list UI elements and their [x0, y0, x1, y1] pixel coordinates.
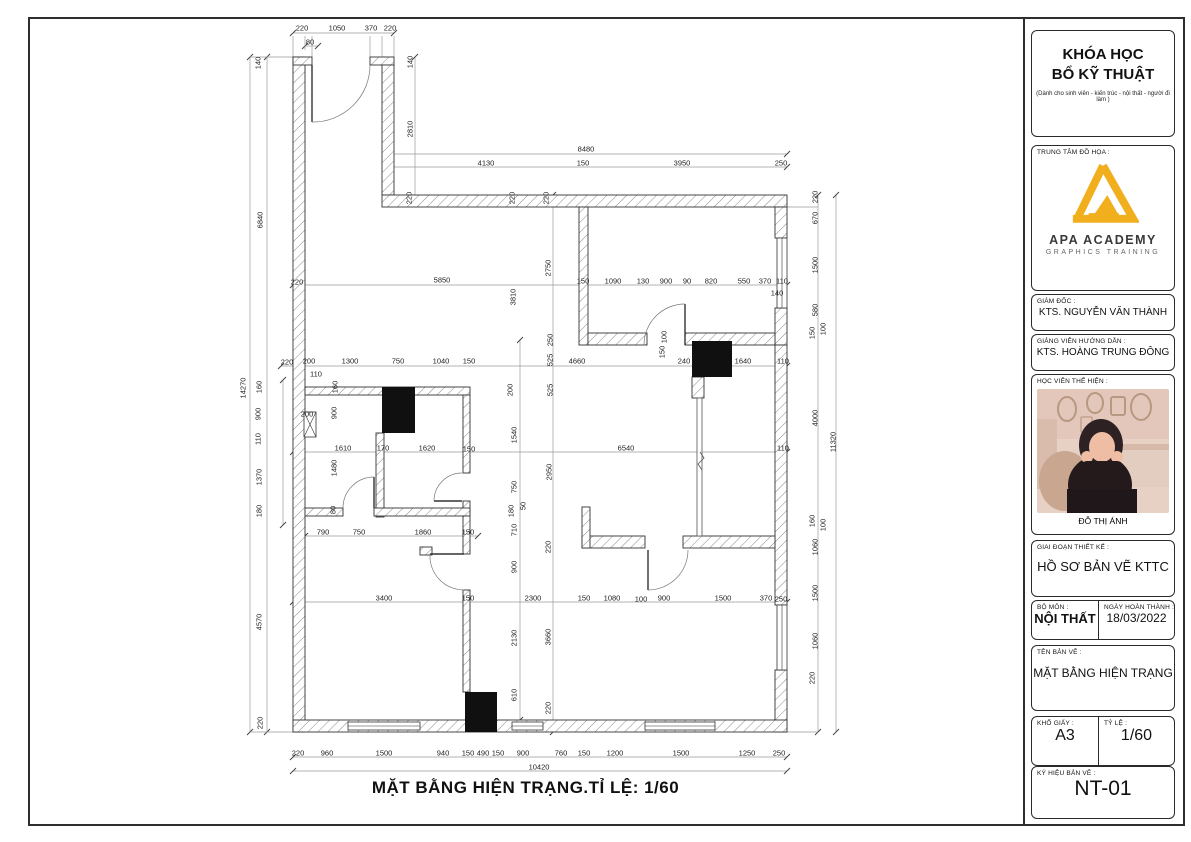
- paper-scale-box: KHỔ GIẤY : A3 TỶ LỆ : 1/60: [1031, 716, 1175, 766]
- door-swing-arc: [648, 550, 688, 590]
- drawing-name-label: TÊN BẢN VẼ :: [1032, 646, 1174, 656]
- dim-label: 110: [310, 370, 322, 379]
- dim-label: 3950: [674, 159, 691, 168]
- dim-label: 370: [759, 277, 772, 286]
- dim-label: 5850: [434, 276, 451, 285]
- dim-label: 80: [329, 506, 338, 514]
- dim-label: 1480: [330, 460, 339, 477]
- wall-segment: [382, 195, 787, 207]
- lecturer-name: KTS. HOÀNG TRUNG ĐÔNG: [1032, 347, 1174, 358]
- date-label: NGÀY HOÀN THÀNH :: [1099, 601, 1174, 611]
- wall-segment: [293, 57, 312, 65]
- lecturer-label: GIẢNG VIÊN HƯỚNG DẪN :: [1032, 335, 1174, 345]
- wall-segment: [382, 65, 394, 195]
- dim-label: 250: [775, 595, 788, 604]
- dim-label: 11320: [829, 432, 838, 452]
- subject-label: BỘ MÔN :: [1032, 601, 1098, 611]
- shaft: [382, 387, 415, 433]
- dim-label: 900: [510, 561, 519, 574]
- dim-label: 3400: [376, 594, 393, 603]
- dim-label: 1500: [811, 257, 820, 274]
- paper-cell: KHỔ GIẤY : A3: [1032, 717, 1098, 765]
- dim-label: 760: [555, 749, 568, 758]
- dim-label: 140: [406, 56, 415, 69]
- triangle-logo-icon: [1067, 160, 1139, 226]
- dim-label: 3660: [544, 629, 553, 646]
- dim-label: 100: [635, 595, 648, 604]
- dim-label: 100: [660, 331, 669, 344]
- date-value: 18/03/2022: [1099, 611, 1174, 625]
- dim-label: 220: [508, 192, 517, 205]
- dim-label: 220: [256, 717, 265, 730]
- dim-label: 900: [254, 408, 263, 421]
- dim-label: 525: [546, 354, 555, 367]
- dim-label: 150: [808, 327, 817, 340]
- dim-label: 150: [462, 528, 475, 537]
- drawing-caption: MẶT BẰNG HIỆN TRẠNG.TỈ LỆ: 1/60: [28, 778, 1023, 798]
- wall-segment: [582, 536, 645, 548]
- dim-label: 3810: [509, 289, 518, 306]
- subject-value: NỘI THẤT: [1032, 611, 1098, 626]
- dim-label: 250: [546, 334, 555, 347]
- dim-label: 6540: [618, 444, 635, 453]
- dim-label: 220: [405, 192, 414, 205]
- dim-label: 220: [544, 702, 553, 715]
- wall-segment: [374, 508, 470, 516]
- director-label: GIÁM ĐỐC :: [1032, 295, 1174, 305]
- dim-label: 1050: [329, 24, 346, 33]
- logo-name: APA ACADEMY: [1032, 233, 1174, 247]
- dim-label: 200: [301, 410, 314, 419]
- dim-label: 14270: [239, 378, 248, 399]
- dim-label: 140: [254, 57, 263, 70]
- dim-label: 1500: [811, 585, 820, 602]
- thin-partition: [697, 398, 702, 536]
- wall-segment: [463, 590, 470, 692]
- student-photo: [1037, 389, 1169, 513]
- student-box: HỌC VIÊN THỂ HIỆN :: [1031, 374, 1175, 535]
- door-swing-arc: [312, 65, 370, 122]
- dim-label: 2750: [544, 260, 553, 277]
- scale-label: TỶ LỆ :: [1099, 717, 1174, 727]
- dim-label: 1200: [607, 749, 624, 758]
- phase-label: GIAI ĐOẠN THIẾT KẾ :: [1032, 541, 1174, 551]
- phase-value: HỒ SƠ BẢN VẼ KTTC: [1032, 559, 1174, 574]
- dim-label: 610: [510, 689, 519, 702]
- dim-label: 110: [254, 433, 263, 445]
- dimension-text-layer: 2201050370220801401402810848041301503950…: [239, 24, 838, 772]
- dim-label: 1540: [510, 427, 519, 444]
- date-cell: NGÀY HOÀN THÀNH : 18/03/2022: [1098, 601, 1174, 639]
- dim-label: 1500: [715, 594, 732, 603]
- dim-label: 4000: [811, 410, 820, 427]
- lecturer-box: GIẢNG VIÊN HƯỚNG DẪN : KTS. HOÀNG TRUNG …: [1031, 334, 1175, 371]
- shaft: [465, 692, 497, 732]
- dim-label: 900: [330, 407, 339, 420]
- dim-label: 220: [384, 24, 397, 33]
- director-box: GIÁM ĐỐC : KTS. NGUYỄN VĂN THÀNH: [1031, 294, 1175, 331]
- dim-label: 150: [578, 749, 591, 758]
- dim-label: 370: [365, 24, 378, 33]
- dim-label: 110: [776, 277, 788, 286]
- dim-label: 220: [291, 278, 304, 287]
- dim-label: 1860: [415, 528, 432, 537]
- scale-value: 1/60: [1099, 727, 1174, 745]
- dim-label: 200: [303, 357, 316, 366]
- dim-label: 250: [773, 749, 786, 758]
- dim-label: 180: [255, 505, 264, 518]
- dim-label: 220: [544, 541, 553, 554]
- dim-label: 220: [542, 192, 551, 205]
- dim-label: 100: [819, 519, 828, 532]
- dim-label: 220: [296, 24, 309, 33]
- dim-label: 2300: [525, 594, 542, 603]
- dim-label: 960: [321, 749, 334, 758]
- dim-label: 130: [637, 277, 650, 286]
- dim-label: 80: [306, 38, 314, 47]
- dim-label: 250: [775, 159, 788, 168]
- dim-label: 200: [506, 384, 515, 397]
- wall-segment: [370, 57, 394, 65]
- wall-layer: [293, 57, 787, 732]
- wall-segment: [582, 507, 590, 548]
- subject-cell: BỘ MÔN : NỘI THẤT: [1032, 601, 1098, 639]
- dim-label: 150: [462, 749, 475, 758]
- dim-label: 150: [658, 346, 667, 359]
- subject-date-box: BỘ MÔN : NỘI THẤT NGÀY HOÀN THÀNH : 18/0…: [1031, 600, 1175, 640]
- code-label: KÝ HIỆU BẢN VẼ :: [1032, 767, 1174, 777]
- student-label: HỌC VIÊN THỂ HIỆN :: [1032, 375, 1174, 385]
- door-swing-arc: [430, 554, 464, 590]
- dim-label: 50: [519, 502, 528, 510]
- dim-label: 1370: [255, 469, 264, 486]
- wall-segment: [775, 308, 787, 345]
- apa-academy-logo: APA ACADEMY GRAPHICS TRAINING: [1032, 160, 1174, 256]
- dim-label: 110: [777, 444, 789, 453]
- dim-label: 1640: [735, 357, 752, 366]
- dim-label: 900: [517, 749, 530, 758]
- wall-segment: [463, 395, 470, 473]
- dim-label: 790: [317, 528, 330, 537]
- dim-label: 160: [808, 515, 817, 528]
- paper-label: KHỔ GIẤY :: [1032, 717, 1098, 727]
- director-name: KTS. NGUYỄN VĂN THÀNH: [1032, 307, 1174, 318]
- dim-label: 220: [808, 672, 817, 685]
- dim-label: 900: [660, 277, 673, 286]
- drawing-sheet: 2201050370220801401402810848041301503950…: [0, 0, 1191, 842]
- dim-label: 110: [777, 357, 789, 366]
- dim-label: 1300: [342, 357, 359, 366]
- dim-label: 1620: [419, 444, 436, 453]
- graphics-center-label: TRUNG TÂM ĐỒ HỌA :: [1032, 146, 1174, 156]
- drawing-name-box: TÊN BẢN VẼ : MẶT BẰNG HIỆN TRẠNG: [1031, 645, 1175, 711]
- floor-plan: 2201050370220801401402810848041301503950…: [28, 17, 1025, 824]
- dim-label: 670: [811, 212, 820, 225]
- dim-label: 1080: [604, 594, 621, 603]
- wall-segment: [683, 536, 775, 548]
- dim-label: 490: [477, 749, 490, 758]
- dim-label: 150: [577, 159, 590, 168]
- dim-label: 10420: [529, 763, 550, 772]
- dim-label: 4660: [569, 357, 586, 366]
- dim-label: 2810: [406, 121, 415, 138]
- design-phase-box: GIAI ĐOẠN THIẾT KẾ : HỒ SƠ BẢN VẼ KTTC: [1031, 540, 1175, 597]
- dim-label: 150: [463, 357, 476, 366]
- dim-label: 580: [811, 304, 820, 317]
- dim-label: 1500: [376, 749, 393, 758]
- dimension-layer: [247, 30, 839, 774]
- drawing-code-box: KÝ HIỆU BẢN VẼ : NT-01: [1031, 766, 1175, 819]
- dim-label: 220: [811, 191, 820, 204]
- dim-label: 2130: [510, 630, 519, 647]
- dim-label: 150: [492, 749, 505, 758]
- dim-label: 1060: [811, 539, 820, 556]
- dim-label: 240: [678, 357, 691, 366]
- dim-label: 8480: [578, 145, 595, 154]
- dim-label: 220: [292, 749, 305, 758]
- student-name: ĐỖ THỊ ÁNH: [1032, 516, 1174, 526]
- title-block: KHÓA HỌC BỔ KỸ THUẬT (Dành cho sinh viên…: [1031, 17, 1177, 824]
- dim-label: 6840: [256, 212, 265, 229]
- wall-segment: [588, 333, 647, 345]
- paper-value: A3: [1032, 727, 1098, 745]
- wall-segment: [293, 57, 305, 732]
- course-subtitle: (Dành cho sinh viên - kiến trúc - nội th…: [1032, 91, 1174, 103]
- dim-label: 100: [819, 323, 828, 336]
- dim-label: 1500: [673, 749, 690, 758]
- dim-label: 150: [577, 277, 590, 286]
- graphics-center-box: TRUNG TÂM ĐỒ HỌA : APA ACADEMY GRAPHICS …: [1031, 145, 1175, 291]
- dim-label: 940: [437, 749, 450, 758]
- wall-segment: [775, 345, 787, 605]
- dim-label: 2950: [545, 464, 554, 481]
- door-swing-arc: [343, 477, 374, 508]
- dim-label: 1250: [739, 749, 756, 758]
- dim-label: 370: [760, 594, 773, 603]
- dim-label: 750: [353, 528, 366, 537]
- logo-tagline: GRAPHICS TRAINING: [1032, 249, 1174, 256]
- dim-label: 550: [738, 277, 751, 286]
- dim-label: 1090: [605, 277, 622, 286]
- scale-cell: TỶ LỆ : 1/60: [1098, 717, 1174, 765]
- dim-label: 160: [331, 381, 340, 394]
- dim-label: 150: [463, 445, 476, 454]
- dim-label: 160: [255, 381, 264, 394]
- shaft: [692, 341, 732, 377]
- dim-label: 90: [683, 277, 691, 286]
- dim-label: 180: [507, 505, 516, 518]
- dim-label: 140: [771, 289, 784, 298]
- dim-label: 1610: [335, 444, 352, 453]
- dim-label: 4130: [478, 159, 495, 168]
- dim-label: 150: [578, 594, 591, 603]
- dim-label: 220: [281, 358, 294, 367]
- dim-label: 820: [705, 277, 718, 286]
- dim-label: 710: [510, 524, 519, 537]
- course-title: KHÓA HỌC BỔ KỸ THUẬT: [1032, 45, 1174, 84]
- door-swing-arc: [434, 473, 462, 501]
- dim-label: 750: [392, 357, 405, 366]
- dim-label: 900: [658, 594, 671, 603]
- dim-label: 750: [510, 481, 519, 494]
- dim-label: 150: [462, 594, 475, 603]
- drawing-name-value: MẶT BẰNG HIỆN TRẠNG: [1032, 666, 1174, 680]
- dim-label: 4570: [255, 614, 264, 631]
- dim-label: 525: [546, 384, 555, 397]
- code-value: NT-01: [1032, 777, 1174, 801]
- dim-label: 170: [377, 444, 390, 453]
- dim-label: 1040: [433, 357, 450, 366]
- wall-segment: [692, 377, 704, 398]
- wall-segment: [775, 207, 787, 238]
- dim-label: 1060: [811, 633, 820, 650]
- course-title-box: KHÓA HỌC BỔ KỸ THUẬT (Dành cho sinh viên…: [1031, 30, 1175, 137]
